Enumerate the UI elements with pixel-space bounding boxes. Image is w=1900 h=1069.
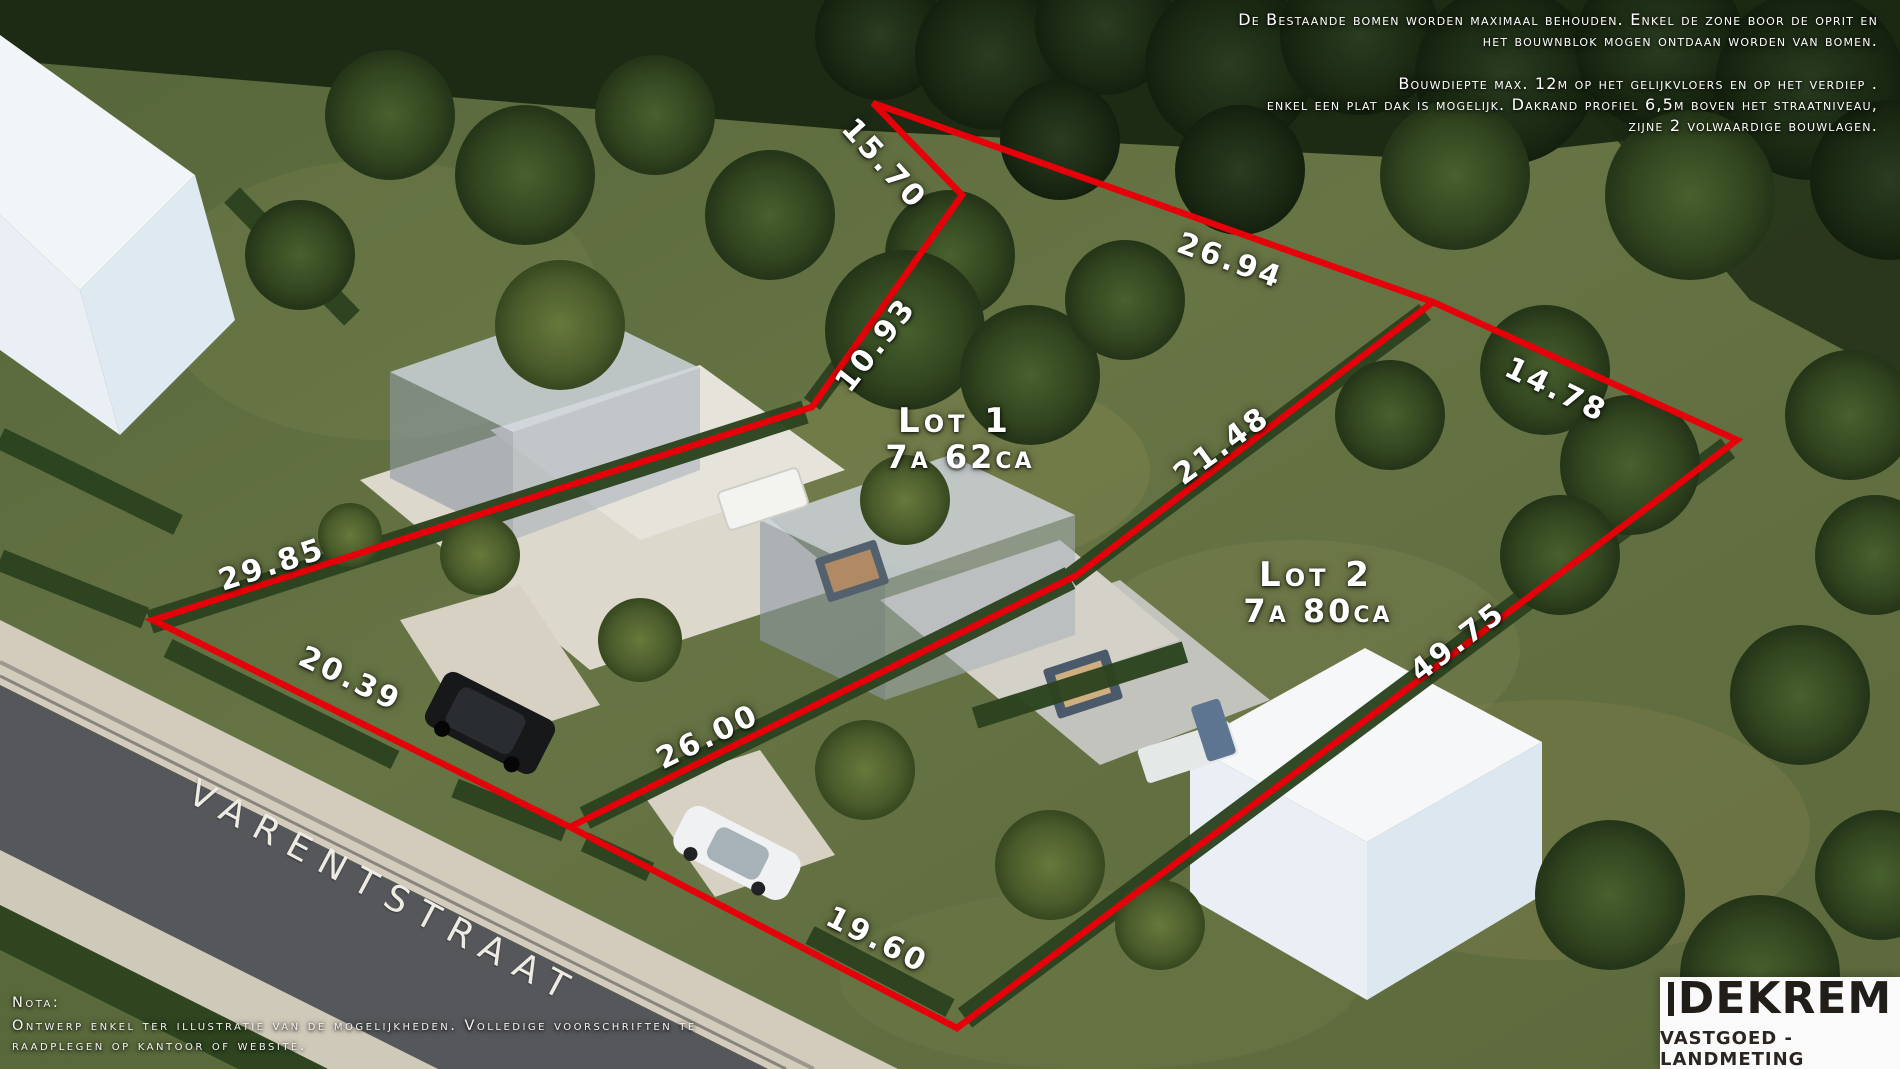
lot-1-area: 7a 62ca	[885, 438, 1034, 476]
planning-notes: De Bestaande bomen worden maximaal behou…	[1238, 9, 1878, 136]
planning-notes-para2: Bouwdiepte max. 12m op het gelijkvloers …	[1238, 73, 1878, 136]
site-plan-render	[0, 0, 1900, 1069]
dekrem-logo: DEKREM VASTGOED - LANDMETING	[1660, 977, 1900, 1069]
note-line: enkel een plat dak is mogelijk. Dakrand …	[1238, 94, 1878, 115]
nota-line: raadplegen op kantoor of website.	[12, 1036, 697, 1056]
note-line: zijne 2 volwaardige bouwlagen.	[1238, 115, 1878, 136]
lot-plan-screenshot: 15.70 10.93 26.94 14.78 21.48 29.85 20.3…	[0, 0, 1900, 1069]
logo-stencil-bar	[1668, 982, 1674, 1016]
nota-line: Ontwerp enkel ter illustratie van de mog…	[12, 1016, 697, 1036]
lot-2-area: 7a 80ca	[1243, 592, 1392, 630]
note-line: De Bestaande bomen worden maximaal behou…	[1238, 9, 1878, 30]
note-line: het bouwnblok mogen ontdaan worden van b…	[1238, 30, 1878, 51]
logo-tagline: VASTGOED - LANDMETING	[1660, 1028, 1900, 1069]
planning-notes-para1: De Bestaande bomen worden maximaal behou…	[1238, 9, 1878, 51]
note-line: Bouwdiepte max. 12m op het gelijkvloers …	[1238, 73, 1878, 94]
logo-brand-text: DEKREM	[1678, 977, 1892, 1021]
lot-1-label: Lot 1	[898, 401, 1012, 441]
nota-disclaimer: Nota: Ontwerp enkel ter illustratie van …	[12, 993, 697, 1056]
lot-2-label: Lot 2	[1259, 555, 1373, 595]
nota-title: Nota:	[12, 993, 697, 1013]
logo-brand-row: DEKREM	[1668, 977, 1892, 1021]
